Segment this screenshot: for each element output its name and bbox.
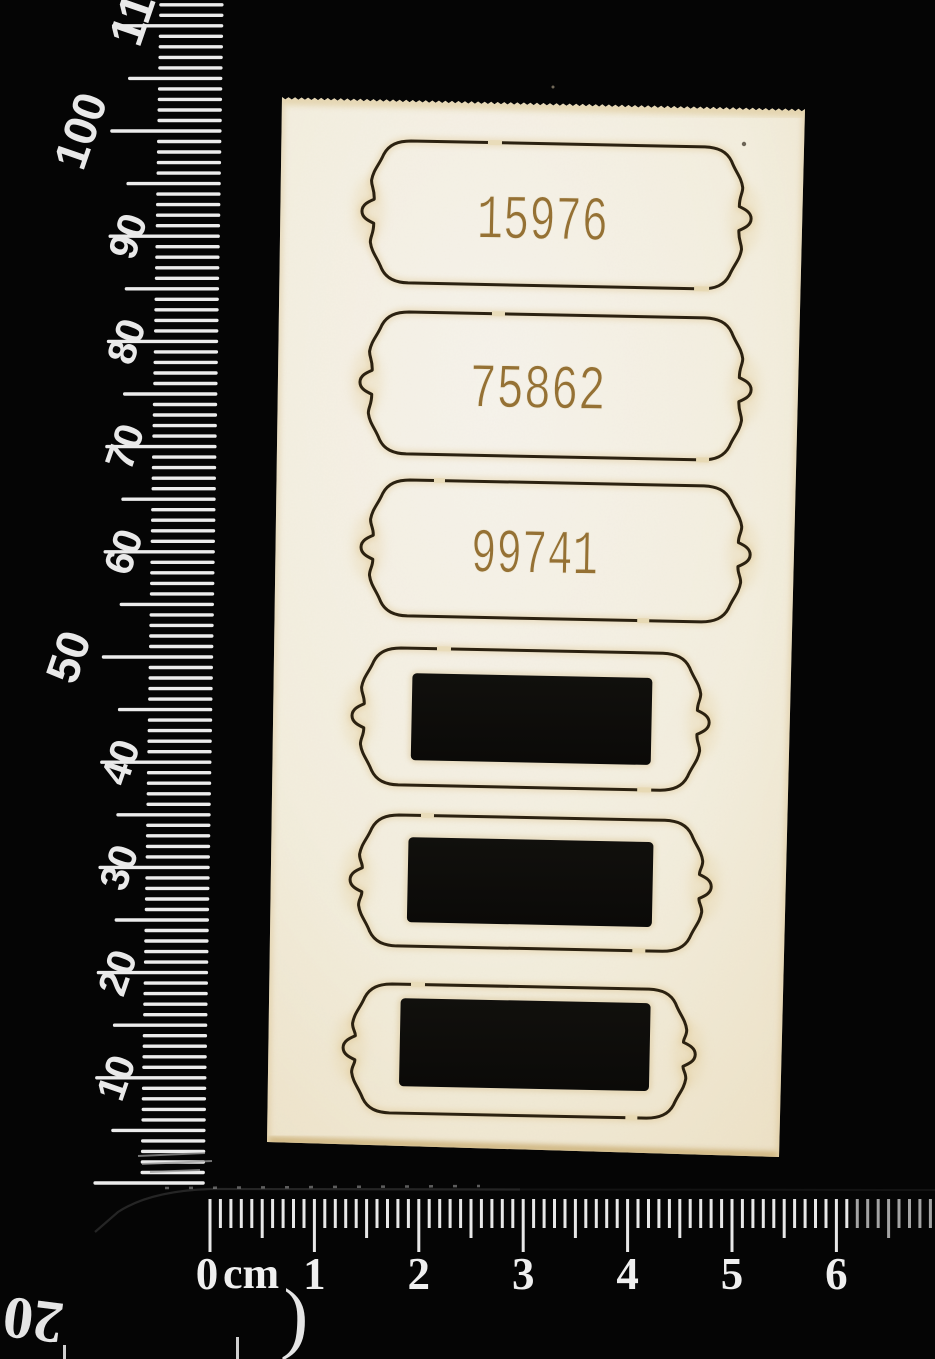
svg-text:75862: 75862 — [469, 354, 606, 428]
svg-text:2: 2 — [408, 1249, 431, 1299]
svg-text:15976: 15976 — [476, 185, 608, 259]
svg-text:cm: cm — [223, 1249, 279, 1298]
svg-text:4: 4 — [616, 1249, 639, 1299]
svg-text:5: 5 — [721, 1249, 744, 1299]
svg-text:99741: 99741 — [470, 519, 598, 593]
svg-text:3: 3 — [512, 1249, 535, 1299]
svg-text:(: ( — [279, 1287, 310, 1359]
svg-text:6: 6 — [825, 1249, 848, 1299]
svg-text:0: 0 — [196, 1249, 219, 1299]
svg-text:20: 20 — [0, 1284, 67, 1357]
